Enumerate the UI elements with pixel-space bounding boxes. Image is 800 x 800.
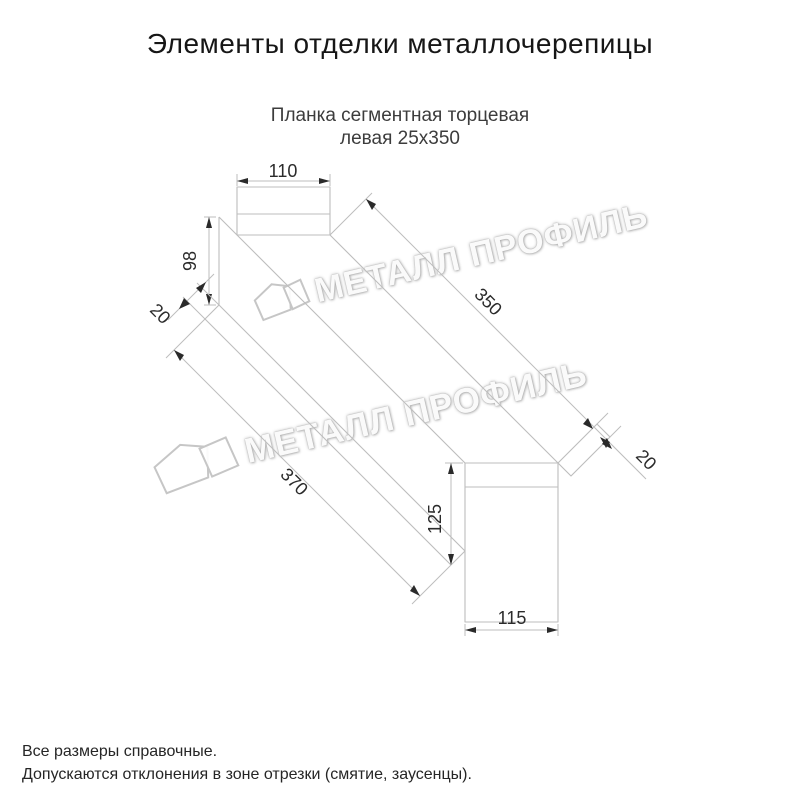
dim-top-tab-width: 110 [237,161,330,186]
arrowhead [547,627,558,633]
extension-line [597,413,608,424]
extension-line [412,565,451,604]
dim-label: 115 [498,608,527,628]
arrowhead [174,350,184,361]
arrowhead [465,627,476,633]
arrowhead [583,418,593,429]
arrowhead [237,178,248,184]
extension-line [610,426,621,437]
dim-label: 110 [269,161,298,181]
dim-length-bottom: 370 [166,319,451,604]
extension-line [183,297,205,319]
end-hem-outline [558,424,610,476]
arrowhead [366,199,376,210]
dim-label: 370 [277,464,312,499]
dim-label: 350 [471,284,506,319]
bottom-hem-start-edge [205,305,219,319]
dim-end-hem: 20 [600,437,660,474]
bottom-hem-edge [205,319,451,565]
part-outline [205,187,610,622]
arrowhead [319,178,330,184]
dim-length-top: 350 [330,193,646,479]
extension-line [166,319,205,358]
dim-end-tab-height: 125 [425,463,463,565]
dimension-line [366,199,646,479]
arrowhead [410,585,420,596]
top-tab-outline [237,187,330,235]
technical-drawing: 110 98 20 350 [0,0,800,800]
bottom-hem-end-edge [451,551,465,565]
arrowhead [206,217,212,228]
main-fold-edge [219,217,465,463]
page: Элементы отделки металлочерепицы Планка … [0,0,800,800]
dim-label: 125 [425,504,445,534]
dim-label: 20 [146,300,174,328]
dim-side-height: 98 [180,217,216,305]
top-face-right-edge [330,235,558,463]
arrowhead [448,463,454,474]
dim-label: 98 [180,251,200,271]
